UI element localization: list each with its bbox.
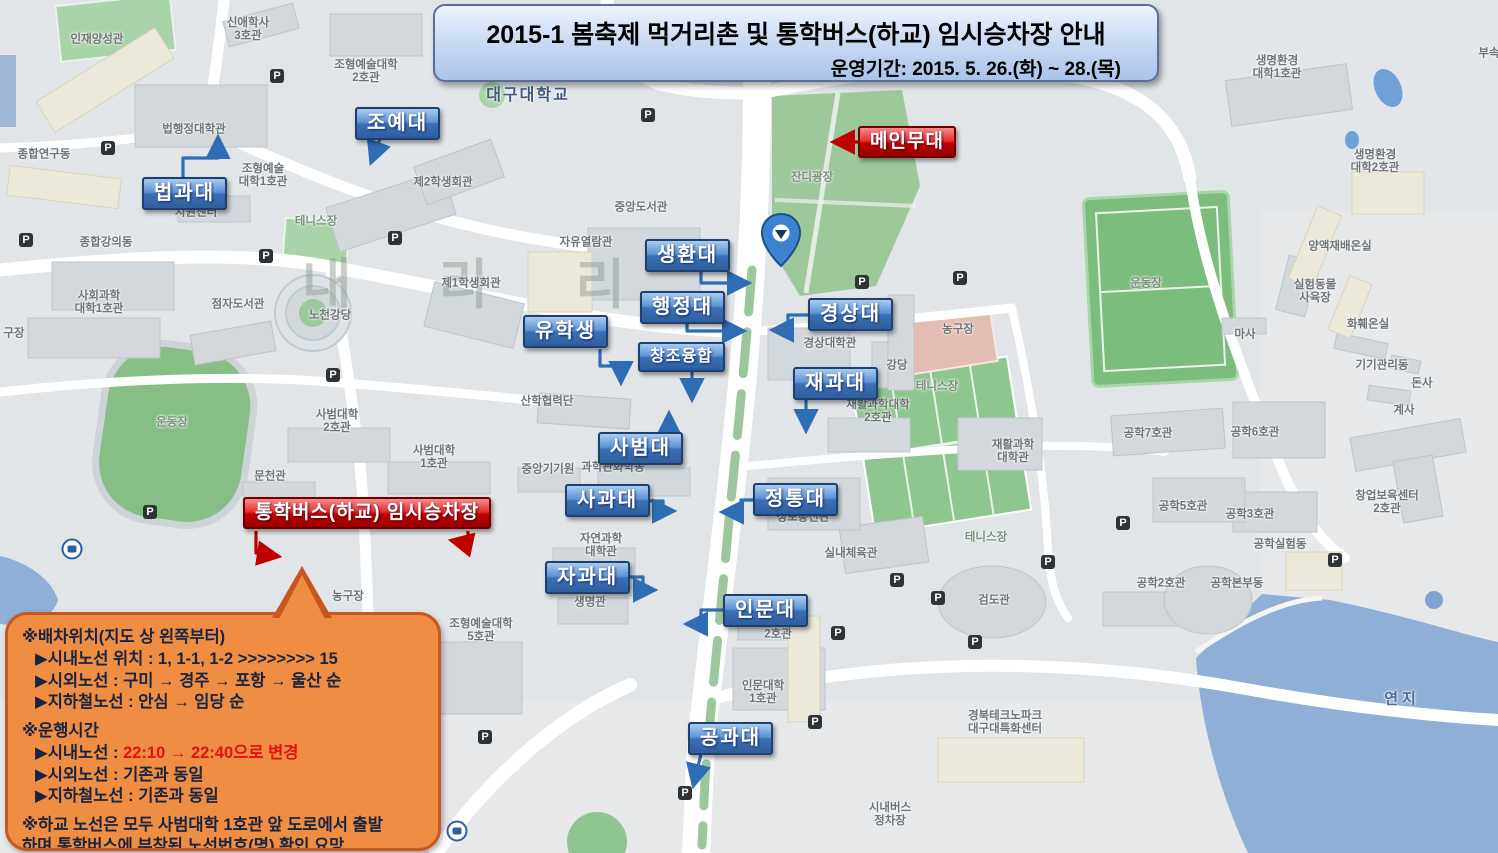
map-text-label: 농구장 — [942, 324, 974, 337]
map-callout-blue: 행정대 — [640, 291, 725, 324]
map-text-label: 경상대학관 — [804, 338, 857, 351]
map-text-label: 기기관리동 — [1356, 360, 1409, 373]
map-text-label: 조형예술대학1호관 — [239, 163, 288, 189]
notice-section: ※하교 노선은 모두 사범대학 1호관 앞 도로에서 출발하며 통학버스에 부착… — [22, 815, 430, 852]
notice-item: ▶지하철노선 : 안심 → 임당 순 — [22, 692, 430, 713]
map-text-label: 공학실험동 — [1254, 539, 1307, 552]
map-callout-blue: 창조융합 — [638, 342, 725, 372]
parking-icon: P — [931, 591, 945, 605]
parking-icon: P — [953, 271, 967, 285]
map-text-label: 생명환경대학2호관 — [1351, 149, 1400, 175]
parking-icon: P — [326, 368, 340, 382]
map-text-label: 창업보육센터2호관 — [1355, 490, 1418, 516]
map-text-label: 종합강의동 — [80, 237, 133, 250]
festival-map-poster: 내 리 리 신애학사3호관인재양성관조형예술대학2호관대구대학교종합연구동법행정… — [0, 0, 1498, 853]
map-text-label: 경북테크노파크대구대특화센터 — [968, 710, 1042, 736]
parking-icon: P — [890, 573, 904, 587]
map-text-label: 제1학생회관 — [441, 278, 500, 291]
parking-icon: P — [1116, 516, 1130, 530]
pond — [1196, 594, 1498, 853]
map-text-label: 부속 — [1478, 48, 1498, 61]
title-banner: 2015-1 봄축제 먹거리촌 및 통학버스(하교) 임시승차장 안내 운영기간… — [433, 4, 1159, 82]
map-text-label: 사범대학1호관 — [413, 445, 455, 471]
parking-icon: P — [641, 108, 655, 122]
map-text-label: 운동장 — [156, 417, 188, 430]
map-text-label: 2호관 — [764, 629, 792, 642]
map-text-label: 사회과학대학1호관 — [75, 290, 124, 316]
map-callout-red: 메인무대 — [858, 126, 956, 158]
map-callout-red: 통학버스(하교) 임시승차장 — [243, 497, 491, 529]
poster-subtitle: 운영기간: 2015. 5. 26.(화) ~ 28.(목) — [435, 54, 1157, 81]
map-text-label: 화훼온실 — [1347, 319, 1389, 332]
map-text-label: 신애학사3호관 — [227, 17, 269, 43]
map-text-label: 자연과학대학관 — [580, 533, 622, 559]
parking-icon: P — [259, 249, 273, 263]
notice-item: ▶지하철노선 : 기존과 동일 — [22, 786, 430, 807]
notice-heading: ※배차위치(지도 상 왼쪽부터) — [22, 627, 430, 648]
map-callout-blue: 사범대 — [598, 432, 683, 465]
notice-heading: ※하교 노선은 모두 사범대학 1호관 앞 도로에서 출발하며 통학버스에 부착… — [22, 815, 430, 852]
map-text-label: 양액재배온실 — [1308, 241, 1371, 254]
map-text-label: 법행정대학관 — [162, 124, 225, 137]
parking-icon: P — [678, 786, 692, 800]
map-text-label: 생명환경대학1호관 — [1253, 55, 1302, 81]
map-callout-blue: 경상대 — [808, 298, 893, 331]
map-text-label: 농구장 — [332, 591, 364, 604]
sports-field-left — [88, 336, 261, 533]
parking-icon: P — [19, 233, 33, 247]
notice-bubble: ※배차위치(지도 상 왼쪽부터)▶시내노선 위치 : 1, 1-1, 1-2 >… — [5, 612, 441, 851]
map-text-label: 공학7호관 — [1124, 428, 1173, 441]
map-text-label: 마사 — [1234, 329, 1255, 342]
notice-item: ▶시내노선 : 22:10 → 22:40으로 변경 — [22, 743, 430, 764]
map-text-label: 조형예술대학2호관 — [334, 59, 397, 85]
parking-icon: P — [101, 141, 115, 155]
map-callout-blue: 법과대 — [142, 177, 227, 210]
map-text-label: 테니스장 — [965, 532, 1007, 545]
notice-item: ▶시외노선 : 기존과 동일 — [22, 765, 430, 786]
map-callout-blue: 자과대 — [545, 561, 630, 594]
map-text-label: 구장 — [3, 328, 24, 341]
map-text-label: 공학3호관 — [1226, 509, 1275, 522]
notice-section: ※운행시간▶시내노선 : 22:10 → 22:40으로 변경▶시외노선 : 기… — [22, 721, 430, 808]
map-callout-blue: 인문대 — [723, 594, 808, 627]
map-text-label: 산학협력단 — [521, 396, 574, 409]
map-callout-blue: 사과대 — [565, 484, 650, 517]
bus-stop-icon — [447, 821, 468, 842]
map-text-label: 공학5호관 — [1159, 501, 1208, 514]
parking-icon: P — [388, 231, 402, 245]
parking-icon: P — [143, 505, 157, 519]
map-callout-blue: 재과대 — [793, 367, 878, 400]
map-text-label: 실험동물사육장 — [1294, 279, 1336, 305]
notice-item: ▶시내노선 위치 : 1, 1-1, 1-2 >>>>>>>> 15 — [22, 649, 430, 670]
map-callout-blue: 공과대 — [688, 722, 773, 755]
map-callout-blue: 유학생 — [523, 315, 608, 348]
poster-title: 2015-1 봄축제 먹거리촌 및 통학버스(하교) 임시승차장 안내 — [435, 15, 1157, 51]
map-text-label: 실내체육관 — [825, 548, 878, 561]
bus-stop-icon — [62, 539, 83, 560]
map-text-label: 자유열람관 — [560, 237, 613, 250]
parking-icon: P — [968, 635, 982, 649]
map-text-label: 시내버스정차장 — [869, 802, 911, 828]
map-text-label: 중앙기기원 — [522, 464, 575, 477]
map-text-label: 중앙도서관 — [615, 202, 668, 215]
map-text-label: 대구대학교 — [486, 87, 570, 105]
map-text-label: 돈사 — [1411, 378, 1432, 391]
parking-icon: P — [270, 69, 284, 83]
notice-section: ※배차위치(지도 상 왼쪽부터)▶시내노선 위치 : 1, 1-1, 1-2 >… — [22, 627, 430, 714]
map-text-label: 재활과학대학2호관 — [846, 399, 909, 425]
map-text-label: 공학6호관 — [1231, 427, 1280, 440]
map-callout-blue: 정통대 — [753, 483, 838, 516]
map-text-label: 잔디광장 — [791, 172, 833, 185]
parking-icon: P — [808, 715, 822, 729]
map-text-label: 재활과학대학관 — [992, 439, 1034, 465]
map-text-label: 공학본부동 — [1211, 578, 1264, 591]
map-text-label: 제2학생회관 — [413, 177, 472, 190]
notice-item: ▶시외노선 : 구미 → 경주 → 포항 → 울산 순 — [22, 671, 430, 692]
map-text-label: 종합연구동 — [18, 149, 71, 162]
map-text-label: 강당 — [886, 360, 907, 373]
parking-icon: P — [855, 275, 869, 289]
map-callout-blue: 생환대 — [645, 239, 730, 272]
map-text-label: 인문대학1호관 — [742, 680, 784, 706]
map-text-label: 노천강당 — [309, 310, 351, 323]
notice-heading: ※운행시간 — [22, 721, 430, 742]
map-text-label: 테니스장 — [916, 381, 958, 394]
parking-icon: P — [1328, 553, 1342, 567]
notice-body: ※배차위치(지도 상 왼쪽부터)▶시내노선 위치 : 1, 1-1, 1-2 >… — [8, 615, 438, 851]
map-text-label: 문천관 — [254, 471, 286, 484]
map-text-label: 운동장 — [1130, 278, 1162, 291]
map-text-label: 계사 — [1393, 405, 1414, 418]
parking-icon: P — [831, 626, 845, 640]
map-text-label: 조형예술대학5호관 — [449, 618, 512, 644]
map-text-label: 연지 — [1384, 692, 1420, 709]
map-text-label: 점자도서관 — [212, 299, 265, 312]
map-text-label: 공학2호관 — [1137, 578, 1186, 591]
map-text-label: 생명관 — [574, 597, 606, 610]
map-text-label: 사범대학2호관 — [316, 409, 358, 435]
parking-icon: P — [1041, 555, 1055, 569]
map-callout-blue: 조예대 — [355, 107, 440, 140]
parking-icon: P — [478, 730, 492, 744]
map-text-label: 인재양성관 — [71, 34, 124, 47]
map-text-label: 테니스장 — [295, 216, 337, 229]
map-text-label: 검도관 — [978, 595, 1010, 608]
